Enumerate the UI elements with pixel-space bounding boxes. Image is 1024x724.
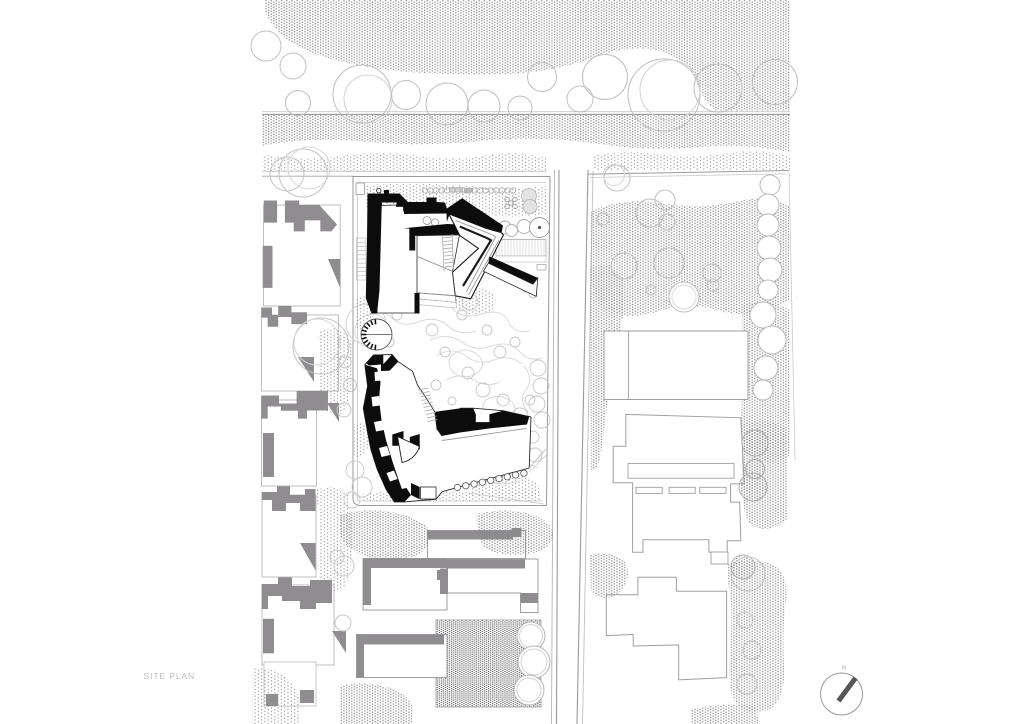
- svg-text:N: N: [842, 666, 846, 672]
- svg-text:SITE PLAN: SITE PLAN: [144, 671, 196, 681]
